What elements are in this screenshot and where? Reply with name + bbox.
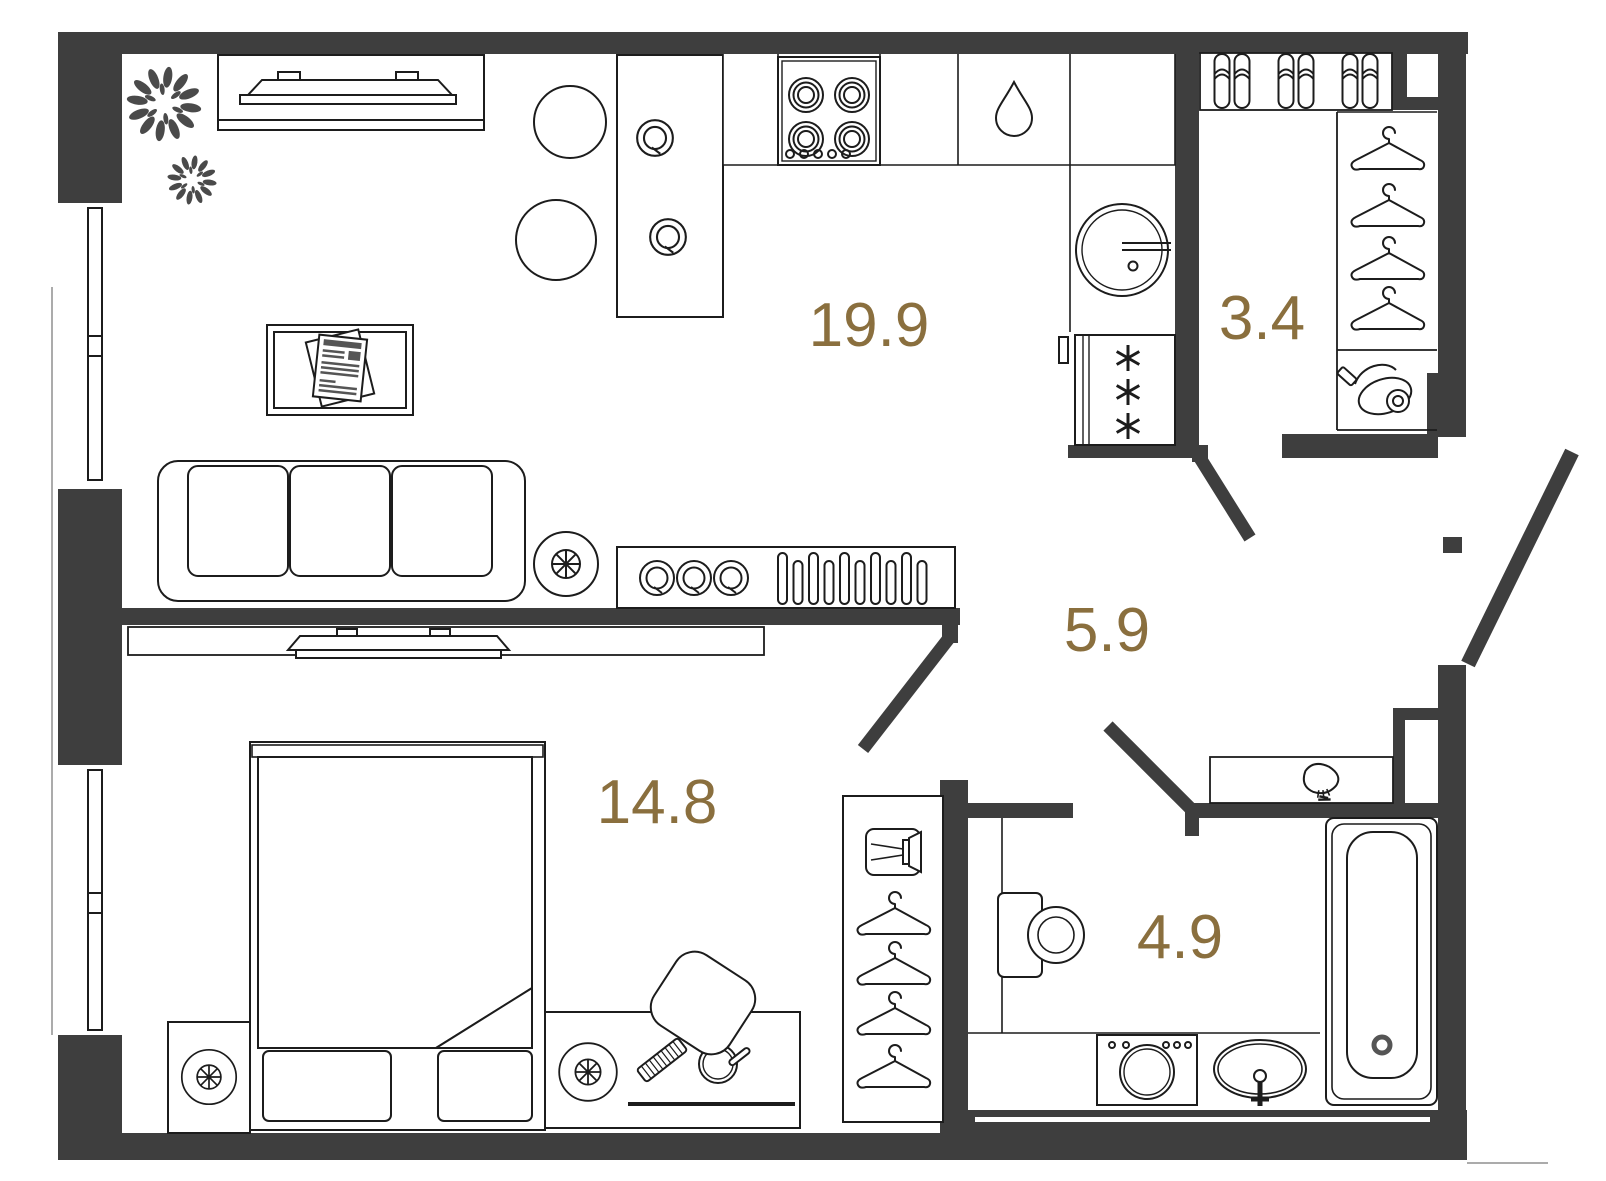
fan-icon — [534, 532, 598, 596]
wall-niche-left — [1393, 720, 1405, 803]
slippers-icon — [1200, 53, 1392, 110]
wall-top — [58, 32, 1468, 54]
wall-left-middle — [58, 485, 122, 765]
entry-shelf — [1210, 757, 1393, 805]
wall-closet-bottom — [1282, 434, 1438, 458]
wall-bottom-left — [58, 1133, 968, 1160]
wall-niche-top — [1393, 708, 1438, 720]
wall-groove — [975, 1117, 1430, 1122]
window-living-icon — [58, 203, 122, 489]
bedroom-tv-console — [128, 627, 764, 658]
wardrobe-icon — [843, 796, 943, 1122]
wall-jamb-bathroom-door — [1185, 818, 1199, 836]
coffee-table-icon — [267, 325, 413, 415]
sideboard-icon — [617, 547, 955, 608]
window-bedroom-icon — [58, 765, 122, 1035]
wall-right-upper — [1438, 32, 1466, 437]
wall-closet-corner-sliver — [1392, 54, 1407, 110]
bed-icon — [250, 742, 545, 1130]
room-label-wardrobe: 3.4 — [1219, 284, 1305, 353]
stove-icon — [778, 57, 880, 165]
wall-kitchen-bottom — [1068, 445, 1199, 458]
magazine-icon — [306, 329, 374, 406]
pillow-icon — [263, 1051, 391, 1121]
wall-entrance-stub — [1443, 537, 1462, 553]
wall-kitchen-closet — [1175, 54, 1199, 458]
sofa-icon — [158, 461, 525, 601]
wall-right-lower — [1438, 665, 1466, 1125]
wall-bathroom-top-left — [940, 803, 1073, 818]
bathtub-icon — [1326, 818, 1437, 1105]
fan-icon — [182, 1050, 236, 1104]
room-label-hallway: 5.9 — [1064, 596, 1150, 665]
wall-bedroom-bathroom — [940, 780, 968, 1133]
fan-icon — [559, 1043, 617, 1101]
media-box-icon — [866, 829, 921, 875]
nightstand-icon — [168, 1022, 250, 1133]
chair-icon — [516, 200, 596, 280]
tv-cabinet — [218, 55, 484, 130]
wall-left-upper — [58, 54, 122, 207]
wall-closet-corner-bit — [1407, 97, 1438, 110]
wall-bathroom-top-right — [1185, 803, 1438, 818]
wall-living-bedroom — [115, 608, 960, 625]
room-label-bedroom: 14.8 — [597, 768, 718, 837]
room-label-kitchen-living: 19.9 — [809, 291, 930, 360]
room-label-bathroom: 4.9 — [1137, 903, 1223, 972]
floor-plan-canvas: 19.9 3.4 5.9 14.8 4.9 — [0, 0, 1606, 1181]
washing-machine-icon — [1097, 1035, 1197, 1105]
pillow-icon — [438, 1051, 532, 1121]
chair-icon — [534, 86, 606, 158]
floor-plan-page: 19.9 3.4 5.9 14.8 4.9 — [0, 0, 1606, 1181]
fridge-icon — [1059, 335, 1175, 445]
wall-right-upper-foot — [1427, 373, 1438, 437]
